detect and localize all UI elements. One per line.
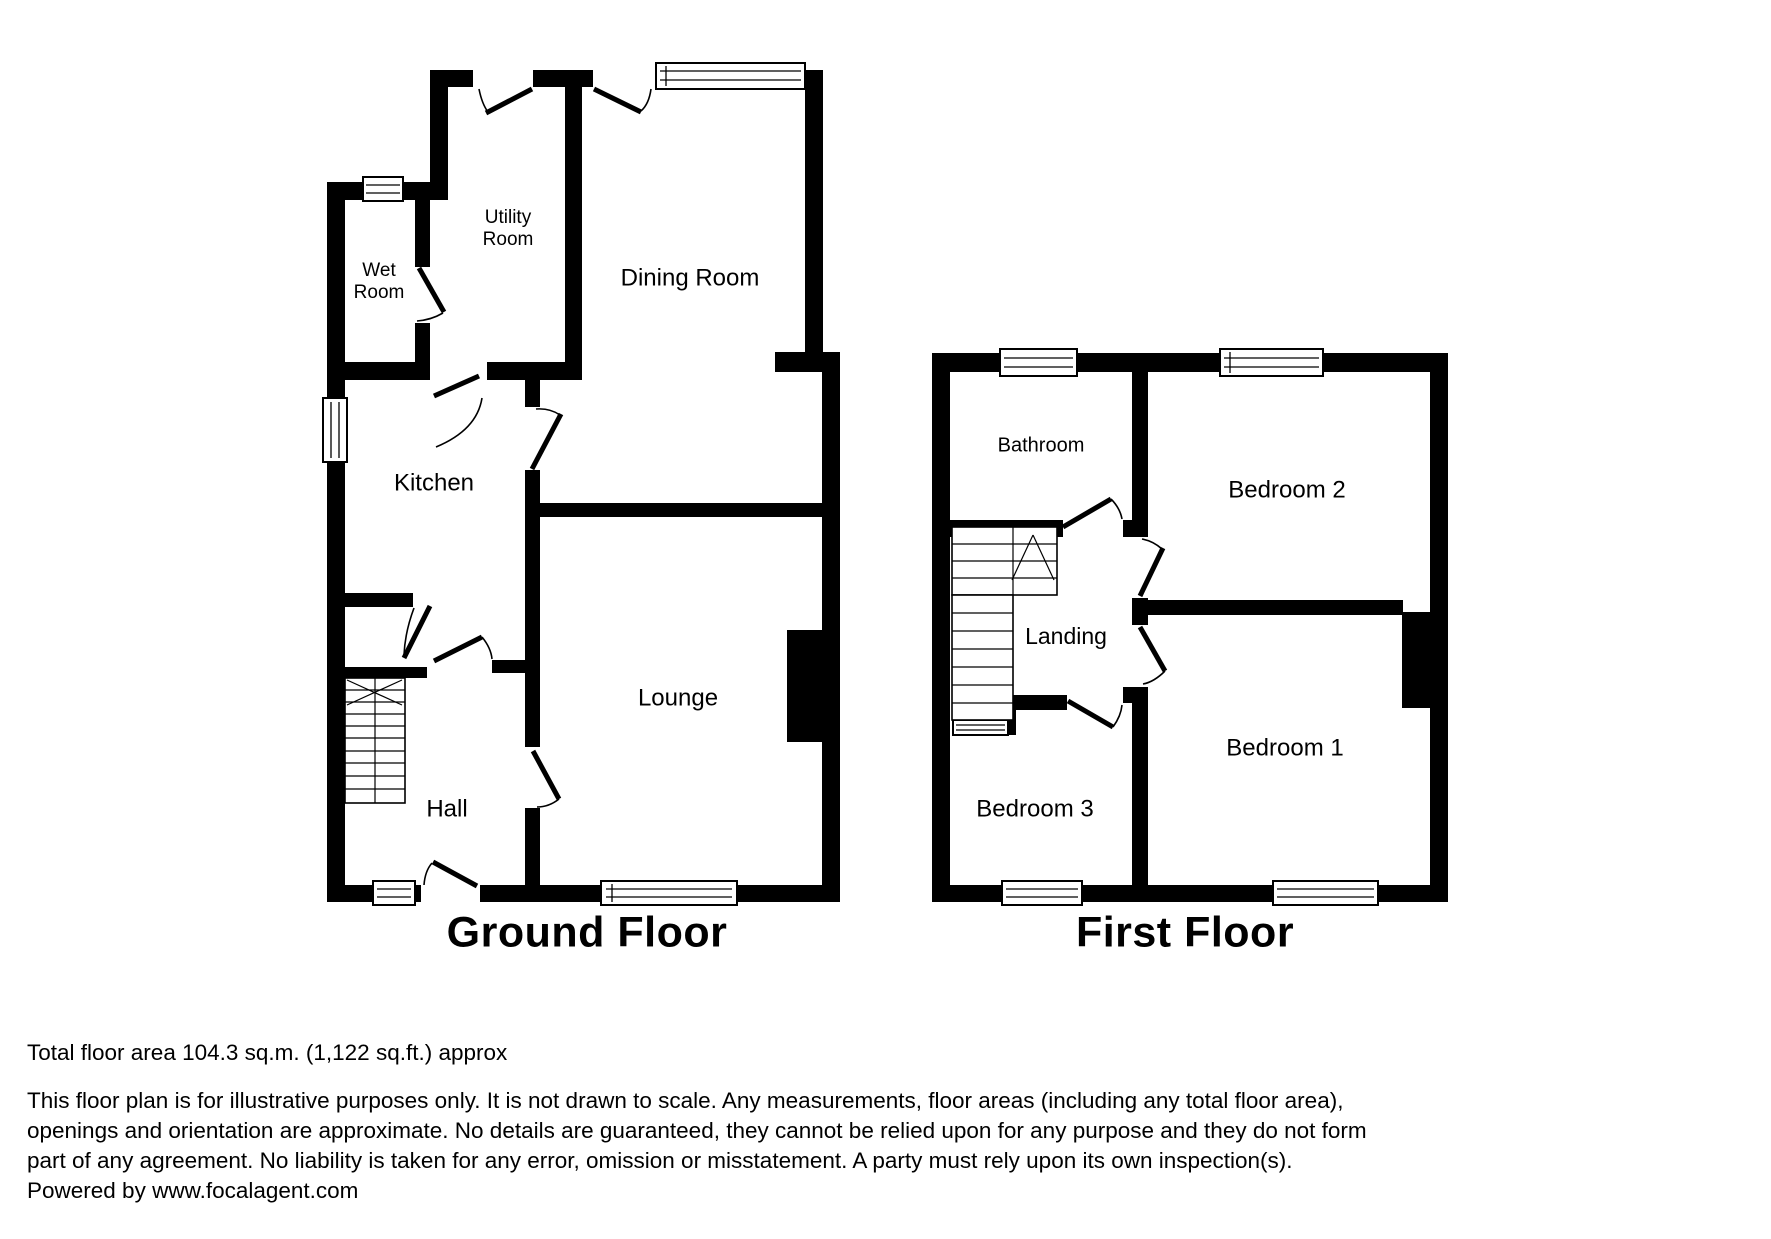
dining-room-door [594, 89, 651, 112]
landing-label: Landing [1025, 624, 1107, 648]
bedroom2-door [1140, 539, 1163, 596]
wet-room-label-line1: Wet [362, 261, 395, 281]
hall-window [373, 881, 415, 905]
dining-room-label: Dining Room [621, 265, 760, 290]
hall-label: Hall [426, 796, 467, 821]
kitchen-lobby-door [434, 376, 482, 447]
first-floor-title: First Floor [1076, 909, 1294, 958]
bathroom-label: Bathroom [998, 436, 1085, 457]
ground-chimney-breast [787, 630, 822, 742]
lounge-door [533, 751, 559, 807]
total-floor-area: Total floor area 104.3 sq.m. (1,122 sq.f… [27, 1040, 507, 1066]
hall-lobby-door [434, 637, 492, 661]
bedroom1-window [1273, 881, 1378, 905]
disclaimer-line-3: part of any agreement. No liability is t… [27, 1148, 1367, 1178]
disclaimer-line-4: Powered by www.focalagent.com [27, 1178, 1367, 1208]
first-chimney-breast [1402, 612, 1430, 708]
bedroom2-window [1220, 349, 1323, 376]
bedroom3-label: Bedroom 3 [976, 796, 1093, 821]
wet-room-window [363, 177, 403, 201]
utility-room-label-line2: Room [483, 230, 534, 250]
floorplan-page: Wet Room Utility Room Dining Room Kitche… [0, 0, 1771, 1239]
bedroom1-label: Bedroom 1 [1226, 735, 1343, 760]
bedroom1-door [1140, 627, 1165, 684]
bathroom-window [1000, 349, 1077, 376]
kitchen-label: Kitchen [394, 470, 474, 495]
disclaimer-line-2: openings and orientation are approximate… [27, 1118, 1367, 1148]
kitchen-hall-door [404, 606, 430, 658]
bedroom2-label: Bedroom 2 [1228, 477, 1345, 502]
wet-room-label-line2: Room [354, 283, 405, 303]
ground-floor-stairs [345, 678, 405, 803]
lounge-label: Lounge [638, 685, 718, 710]
disclaimer: This floor plan is for illustrative purp… [27, 1088, 1367, 1208]
utility-room-door [479, 89, 532, 113]
kitchen-window [323, 398, 347, 462]
front-door [424, 862, 477, 886]
stairwell-window [953, 720, 1008, 735]
lounge-window [601, 881, 737, 905]
bedroom3-door [1068, 701, 1122, 727]
wet-room-door [417, 268, 444, 321]
dining-room-window [656, 63, 805, 89]
disclaimer-line-1: This floor plan is for illustrative purp… [27, 1088, 1367, 1118]
bathroom-door [1063, 499, 1122, 527]
ground-floor-title: Ground Floor [447, 909, 728, 958]
utility-room-label-line1: Utility [485, 208, 531, 228]
bedroom3-window [1002, 881, 1082, 905]
kitchen-dining-door [532, 409, 561, 469]
